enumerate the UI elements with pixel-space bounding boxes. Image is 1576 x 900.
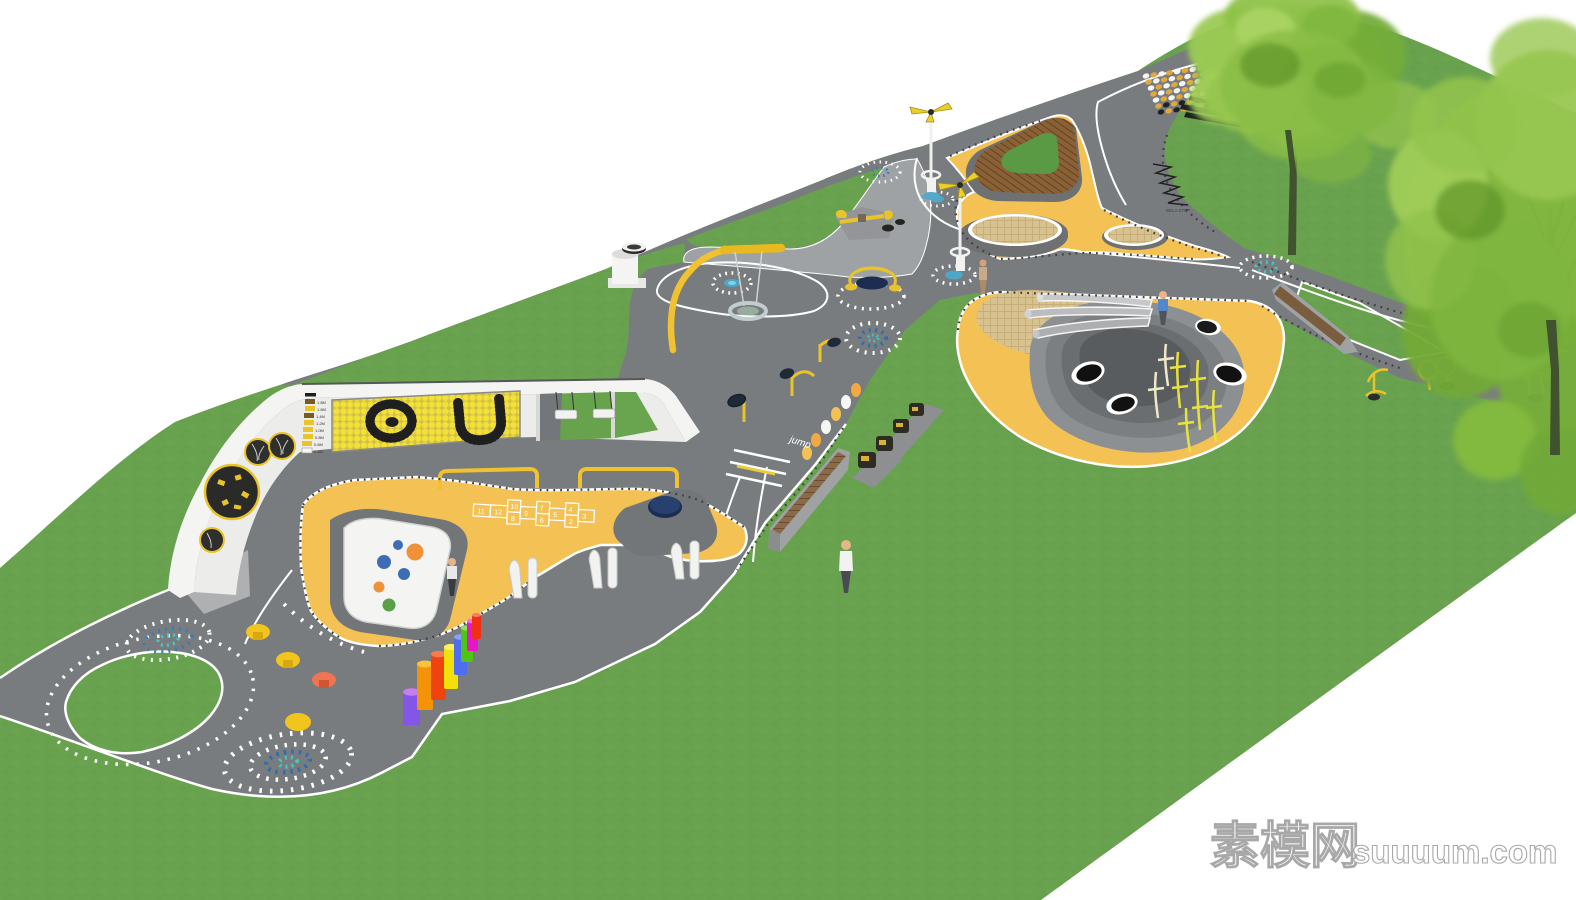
svg-text:2: 2 bbox=[569, 519, 573, 526]
svg-text:0.4M: 0.4M bbox=[314, 449, 323, 454]
svg-text:8: 8 bbox=[511, 516, 515, 523]
svg-text:7: 7 bbox=[539, 505, 543, 512]
svg-text:3: 3 bbox=[582, 514, 586, 521]
svg-text:1.6M: 1.6M bbox=[317, 407, 326, 412]
svg-text:1.8M: 1.8M bbox=[317, 400, 326, 405]
svg-text:1.4M: 1.4M bbox=[316, 414, 325, 419]
svg-text:9: 9 bbox=[524, 511, 528, 518]
svg-text:6: 6 bbox=[540, 517, 544, 524]
svg-text:12: 12 bbox=[494, 509, 502, 516]
svg-text:4: 4 bbox=[568, 507, 572, 514]
svg-text:0.8M: 0.8M bbox=[315, 435, 324, 440]
svg-text:10: 10 bbox=[510, 504, 518, 511]
svg-text:5: 5 bbox=[553, 512, 557, 519]
svg-text:suuuum.com: suuuum.com bbox=[1352, 833, 1557, 870]
svg-text:11: 11 bbox=[477, 508, 485, 515]
svg-text:BELA STEP: BELA STEP bbox=[1166, 208, 1190, 213]
svg-text:素模网: 素模网 bbox=[1210, 818, 1360, 874]
svg-text:1.2M: 1.2M bbox=[316, 421, 325, 426]
svg-text:0.6M: 0.6M bbox=[314, 442, 323, 447]
svg-text:1.0M: 1.0M bbox=[315, 428, 324, 433]
